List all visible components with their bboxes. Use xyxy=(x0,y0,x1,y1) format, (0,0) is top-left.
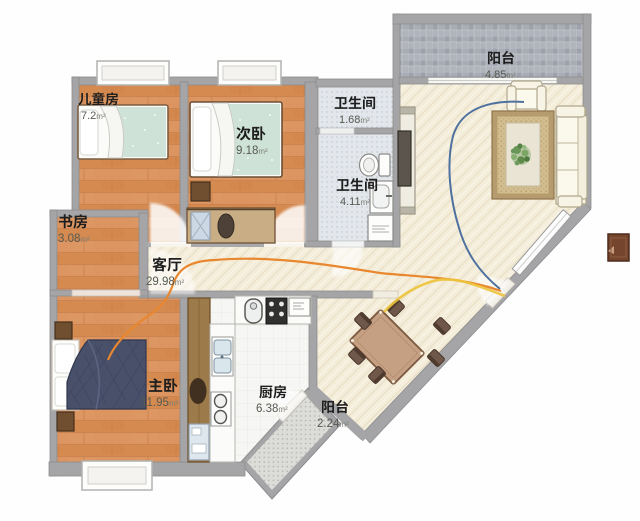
svg-text:29.98m²: 29.98m² xyxy=(146,276,184,288)
svg-text:4.85m²: 4.85m² xyxy=(485,69,516,81)
svg-text:2.24m²: 2.24m² xyxy=(317,418,349,430)
svg-text:1.68m²: 1.68m² xyxy=(339,114,370,126)
svg-text:4.11m²: 4.11m² xyxy=(340,196,370,208)
svg-text:7.2m²: 7.2m² xyxy=(81,110,106,122)
svg-text:3.08m²: 3.08m² xyxy=(58,233,90,245)
svg-text:6.38m²: 6.38m² xyxy=(256,403,288,415)
svg-text:11.95m²: 11.95m² xyxy=(141,397,179,409)
svg-text:9.18m²: 9.18m² xyxy=(236,145,268,157)
